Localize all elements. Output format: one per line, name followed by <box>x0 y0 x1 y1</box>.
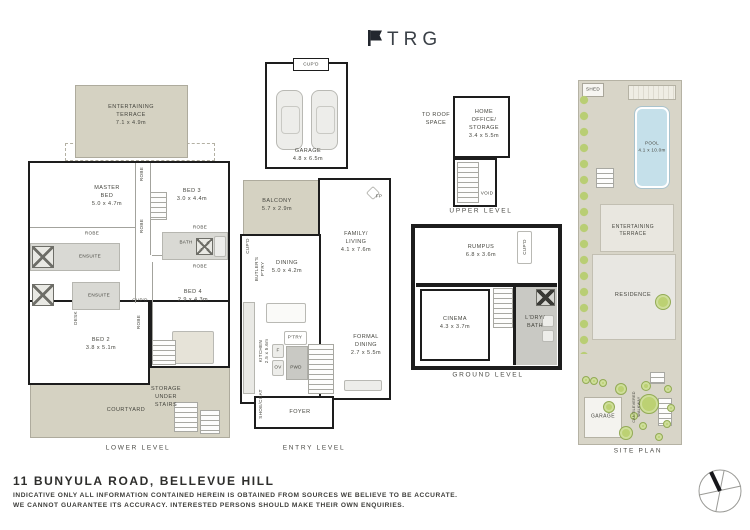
room-label-cupd: CUP'D <box>245 238 251 253</box>
room-label-robe: ROBE <box>85 231 99 238</box>
level-label-site: SITE PLAN <box>614 446 663 455</box>
room-label-cinema: CINEMA 4.3 x 3.7m <box>440 316 470 332</box>
upper-stairs <box>457 162 479 203</box>
site-hedge <box>579 92 590 354</box>
tree <box>639 422 647 430</box>
room-label-shoe-coat: SHOE/COAT <box>258 389 264 418</box>
level-label-entry: ENTRY LEVEL <box>283 443 346 452</box>
site-stairs1 <box>650 372 665 384</box>
room-label-bed4: BED 4 2.9 x 4.3m <box>178 289 208 305</box>
tree <box>582 376 590 384</box>
tree <box>663 420 671 428</box>
room-label-robe: ROBE <box>136 315 142 329</box>
room-label-cupd: CUP'D <box>522 239 528 254</box>
car-outline <box>311 90 338 150</box>
tree <box>641 381 651 391</box>
site-label-walkway: CANTILEVERED WALKWAY <box>632 391 642 423</box>
powder-room-floor <box>286 346 308 380</box>
room-label-ensuite2: ENSUITE <box>88 293 110 300</box>
site-deck <box>628 85 676 100</box>
room-label-garage: GARAGE 4.8 x 6.5m <box>293 148 323 164</box>
lower-stairs-bottom <box>152 340 176 365</box>
room-label-butlers-pantry: BUTLER'S P'TRY <box>254 257 266 281</box>
kitchen-counter <box>243 302 255 394</box>
site-label-terrace: ENTERTAINING TERRACE <box>612 224 654 239</box>
lower-shower2 <box>32 284 54 306</box>
room-label-formal-dining: FORMAL DINING 2.7 x 5.5m <box>351 334 381 358</box>
room-label-robe: ROBE <box>193 264 207 271</box>
tree <box>599 379 607 387</box>
disclaimer-line1: INDICATIVE ONLY ALL INFORMATION CONTAINE… <box>13 492 458 499</box>
car-outline <box>276 90 303 150</box>
tree <box>619 426 633 440</box>
laundry-appliance <box>542 330 554 342</box>
trg-flag-icon <box>366 29 384 47</box>
ground-shower <box>536 289 555 306</box>
room-label-balcony: BALCONY 5.7 x 2.9m <box>262 198 292 214</box>
tree <box>667 404 675 412</box>
room-label-robe: ROBE <box>139 167 145 181</box>
site-lawn-stairs <box>596 168 614 188</box>
room-label-entertaining-terrace: ENTERTAINING TERRACE 7.1 x 4.9m <box>108 104 154 128</box>
ground-stairs <box>493 288 513 328</box>
room-label-kitchen: KITCHEN 2.5 x 5.6m <box>258 339 270 363</box>
lower-shower1 <box>32 246 54 268</box>
room-label-robe: ROBE <box>193 225 207 232</box>
room-label-storage: STORAGE UNDER STAIRS <box>151 386 181 410</box>
property-address-title: 11 BUNYULA ROAD, BELLEVUE HILL <box>13 474 275 488</box>
ground-wall <box>513 287 516 365</box>
level-label-upper: UPPER LEVEL <box>449 206 512 215</box>
tree <box>615 383 627 395</box>
lower-bath-shower <box>196 238 213 255</box>
tree <box>603 401 615 413</box>
room-label-courtyard: COURTYARD <box>107 407 145 415</box>
room-label-bed3: BED 3 3.0 x 4.4m <box>177 188 207 204</box>
entry-stairs <box>308 344 334 394</box>
room-label-bed2: BED 2 3.8 x 5.1m <box>86 337 116 353</box>
kitchen-island <box>266 303 306 323</box>
room-label-bath: BATH <box>179 240 192 247</box>
room-label-fridge: F <box>276 348 279 355</box>
tree <box>655 433 663 441</box>
compass-icon <box>694 464 746 516</box>
lower-tub <box>214 236 226 257</box>
tree <box>639 394 659 414</box>
brand-name: TRG <box>387 29 442 51</box>
site-label-shed: SHED <box>586 87 600 94</box>
lower-courtyard-stairs2 <box>200 410 220 434</box>
tree <box>590 377 598 385</box>
room-label-family-living: FAMILY/ LIVING 4.1 x 7.6m <box>341 231 371 255</box>
room-label-garage-cupd: CUP'D <box>303 62 318 69</box>
room-label-cupd: CUP'D <box>132 298 147 305</box>
site-label-garage: GARAGE <box>591 413 615 420</box>
site-label-residence: RESIDENCE <box>615 292 651 300</box>
disclaimer-line2: WE CANNOT GUARANTEE ITS ACCURACY. INTERE… <box>13 502 405 509</box>
room-label-foyer: FOYER <box>289 409 310 417</box>
lower-bed4-bed <box>172 331 214 364</box>
level-label-lower: LOWER LEVEL <box>106 443 171 452</box>
sideboard <box>344 380 382 391</box>
room-label-void: VOID <box>481 191 493 198</box>
room-label-rumpus: RUMPUS 6.8 x 3.6m <box>466 244 496 260</box>
room-label-master-bed: MASTER BED 5.0 x 4.7m <box>92 185 122 209</box>
floorplan-page: TRG ENTERTAINING TERRACE 7.1 x 4.9m MAST… <box>0 0 750 530</box>
lower-stairs-top <box>150 192 167 220</box>
room-label-desk: DESK <box>73 311 79 325</box>
level-label-ground: GROUND LEVEL <box>452 370 523 379</box>
room-label-laundry-bath: L'DRY/ BATH <box>525 315 545 331</box>
lower-wall <box>135 163 136 303</box>
room-label-dining: DINING 5.0 x 4.2m <box>272 260 302 276</box>
lower-wall <box>30 227 135 228</box>
room-label-ensuite1: ENSUITE <box>79 254 101 261</box>
room-label-pantry: P'TRY <box>288 335 303 342</box>
room-label-oven: OV <box>274 365 281 372</box>
room-label-fireplace: FP <box>376 194 382 201</box>
lower-wall <box>152 262 153 340</box>
room-label-to-roof-space: TO ROOF SPACE <box>422 112 450 128</box>
room-label-home-office: HOME OFFICE/ STORAGE 3.4 x 5.5m <box>469 109 499 141</box>
tree <box>655 294 671 310</box>
room-label-robe: ROBE <box>139 219 145 233</box>
tree <box>664 385 672 393</box>
site-label-pool: POOL 4.1 x 10.0m <box>638 140 665 153</box>
room-label-powder: PWD <box>290 365 302 372</box>
